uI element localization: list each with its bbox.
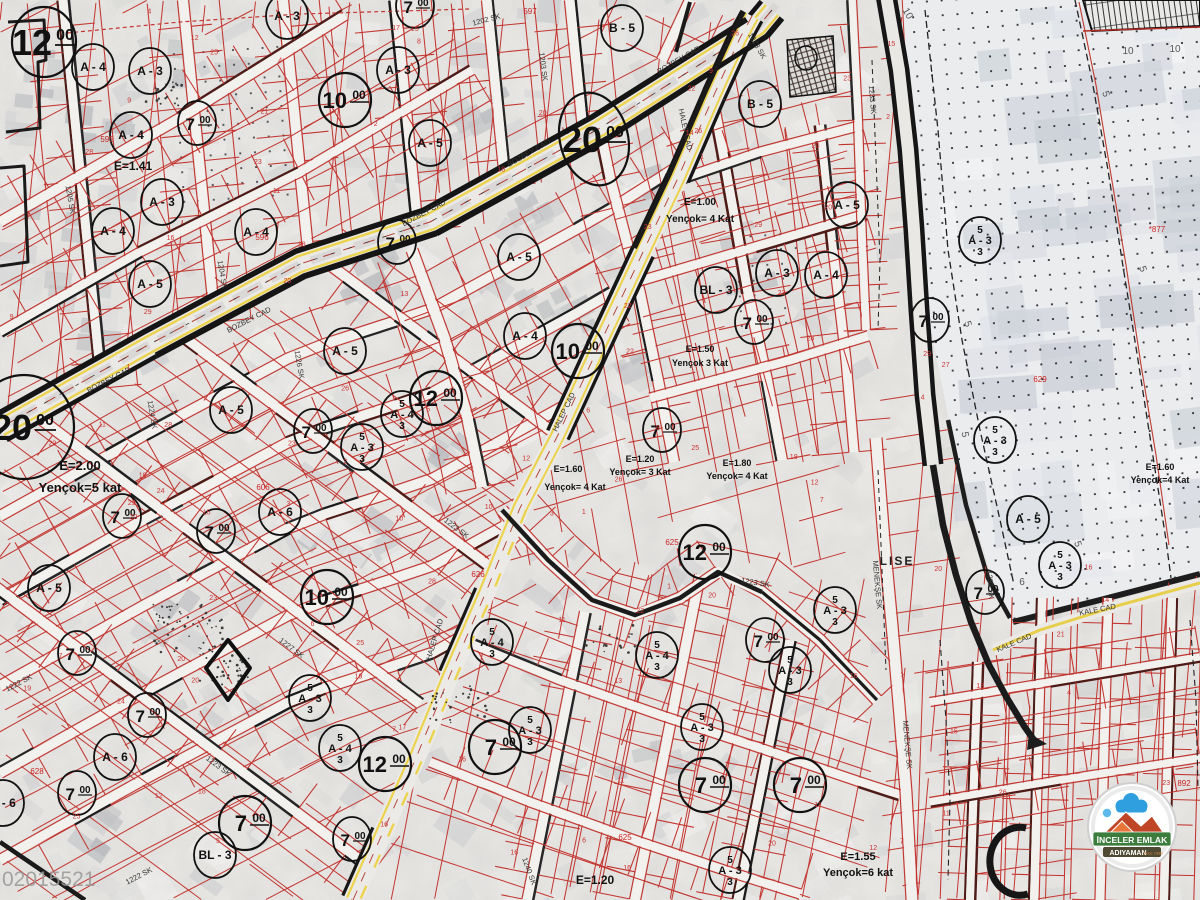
svg-text:Yençok= 4 Kat: Yençok= 4 Kat xyxy=(706,471,767,481)
svg-text:7: 7 xyxy=(754,632,763,651)
svg-text:7: 7 xyxy=(743,314,752,333)
svg-text:A - 3: A - 3 xyxy=(274,9,300,23)
svg-text:8: 8 xyxy=(656,425,660,432)
svg-text:6: 6 xyxy=(310,621,314,628)
svg-text:A - 4: A - 4 xyxy=(390,409,414,421)
svg-text:1: 1 xyxy=(582,509,586,516)
svg-text:00: 00 xyxy=(352,88,366,102)
svg-text:628: 628 xyxy=(30,767,44,776)
svg-text:29: 29 xyxy=(144,309,152,316)
svg-text:7: 7 xyxy=(66,785,75,804)
svg-text:E=1.20: E=1.20 xyxy=(576,873,615,887)
svg-text:28: 28 xyxy=(807,336,815,343)
svg-text:14: 14 xyxy=(1101,597,1109,604)
svg-text:3: 3 xyxy=(489,649,495,660)
svg-text:3: 3 xyxy=(307,705,313,716)
svg-text:25: 25 xyxy=(691,445,699,452)
svg-text:7: 7 xyxy=(485,735,497,760)
svg-text:15: 15 xyxy=(888,41,896,48)
svg-text:20: 20 xyxy=(708,593,716,600)
svg-text:00: 00 xyxy=(252,811,266,825)
svg-text:8: 8 xyxy=(417,39,421,46)
svg-text:23: 23 xyxy=(1162,780,1170,787)
svg-text:00: 00 xyxy=(79,785,91,796)
svg-text:BL - 3: BL - 3 xyxy=(198,848,231,862)
svg-text:E=1.20: E=1.20 xyxy=(626,454,655,464)
svg-text:14: 14 xyxy=(686,130,694,137)
svg-text:A - 6: A - 6 xyxy=(0,796,16,810)
svg-text:13: 13 xyxy=(401,291,409,298)
svg-text:00: 00 xyxy=(606,124,624,141)
svg-text:00: 00 xyxy=(502,735,516,749)
svg-text:606: 606 xyxy=(256,483,270,492)
svg-text:7: 7 xyxy=(386,234,395,253)
svg-text:A - 6: A - 6 xyxy=(102,750,128,764)
svg-text:00: 00 xyxy=(199,115,211,126)
svg-text:7: 7 xyxy=(186,115,195,134)
svg-text:595: 595 xyxy=(100,135,114,144)
svg-text:29: 29 xyxy=(923,351,931,358)
svg-text:A - 5: A - 5 xyxy=(1015,512,1041,526)
svg-text:21: 21 xyxy=(261,109,269,116)
svg-text:E=1.80: E=1.80 xyxy=(723,458,752,468)
svg-text:A - 4: A - 4 xyxy=(512,329,538,343)
svg-text:7: 7 xyxy=(790,773,802,798)
svg-text:Yençok=5 kat: Yençok=5 kat xyxy=(39,480,122,495)
svg-text:16: 16 xyxy=(623,865,631,872)
svg-text:00: 00 xyxy=(399,234,411,245)
svg-text:Yençok=4 Kat: Yençok=4 Kat xyxy=(1131,475,1190,485)
svg-text:19: 19 xyxy=(23,686,31,693)
svg-text:00: 00 xyxy=(443,386,457,400)
svg-text:A - 4: A - 4 xyxy=(480,637,504,649)
svg-text:E=1.50: E=1.50 xyxy=(686,344,715,354)
svg-text:23: 23 xyxy=(209,595,217,602)
svg-text:26: 26 xyxy=(615,477,623,484)
svg-text:596: 596 xyxy=(255,233,269,242)
svg-text:12: 12 xyxy=(811,479,819,486)
svg-text:A - 4: A - 4 xyxy=(645,650,669,662)
svg-text:00: 00 xyxy=(392,752,406,766)
svg-text:A - 5: A - 5 xyxy=(218,403,244,417)
svg-text:16: 16 xyxy=(458,756,466,763)
svg-text:E=1.00: E=1.00 xyxy=(684,197,716,208)
svg-text:20: 20 xyxy=(562,119,602,160)
svg-text:26: 26 xyxy=(694,128,702,135)
svg-text:10: 10 xyxy=(395,515,403,522)
svg-text:00: 00 xyxy=(334,585,348,599)
svg-text:E=1.60: E=1.60 xyxy=(1146,462,1175,472)
svg-text:9: 9 xyxy=(709,68,713,75)
svg-text:3: 3 xyxy=(787,677,793,688)
svg-text:3: 3 xyxy=(699,734,705,745)
svg-text:A - 3: A - 3 xyxy=(778,665,801,677)
svg-text:3: 3 xyxy=(1057,572,1063,583)
svg-text:00: 00 xyxy=(712,540,726,554)
svg-text:10: 10 xyxy=(323,88,347,113)
svg-text:00: 00 xyxy=(354,831,366,842)
svg-text:1: 1 xyxy=(700,153,704,160)
svg-text:625: 625 xyxy=(618,833,632,842)
svg-text:626: 626 xyxy=(471,570,485,579)
svg-text:12: 12 xyxy=(191,35,199,42)
svg-text:7: 7 xyxy=(302,423,311,442)
svg-text:00: 00 xyxy=(79,645,91,656)
svg-text:12: 12 xyxy=(12,22,52,63)
svg-text:20: 20 xyxy=(284,278,292,285)
svg-text:11: 11 xyxy=(273,188,280,195)
svg-text:A - 5: A - 5 xyxy=(417,136,443,150)
svg-text:6: 6 xyxy=(582,838,586,845)
svg-text:A - 3: A - 3 xyxy=(298,693,321,705)
svg-text:4: 4 xyxy=(921,395,925,402)
svg-text:A - 3: A - 3 xyxy=(718,865,741,877)
svg-text:A - 5: A - 5 xyxy=(506,250,532,264)
svg-text:12: 12 xyxy=(363,752,387,777)
svg-text:00: 00 xyxy=(315,423,327,434)
svg-text:A - 3: A - 3 xyxy=(764,266,790,280)
svg-text:6: 6 xyxy=(586,408,590,415)
svg-text:A - 3: A - 3 xyxy=(690,722,713,734)
svg-text:16: 16 xyxy=(380,822,388,829)
svg-text:2: 2 xyxy=(374,121,378,128)
svg-text:23: 23 xyxy=(288,441,296,448)
svg-text:7: 7 xyxy=(900,839,904,846)
svg-text:13: 13 xyxy=(614,678,622,685)
svg-text:7: 7 xyxy=(341,831,350,850)
svg-text:20: 20 xyxy=(177,656,185,663)
svg-text:21: 21 xyxy=(1057,632,1065,639)
svg-text:A - 4: A - 4 xyxy=(813,268,839,282)
svg-text:23: 23 xyxy=(843,76,851,83)
svg-text:Yençok=6 kat: Yençok=6 kat xyxy=(823,867,893,879)
svg-text:A - 4: A - 4 xyxy=(118,128,144,142)
svg-text:4: 4 xyxy=(278,58,282,65)
svg-text:BL - 3: BL - 3 xyxy=(699,283,732,297)
svg-text:28: 28 xyxy=(428,579,436,586)
svg-text:A - 5: A - 5 xyxy=(332,344,358,358)
svg-text:13: 13 xyxy=(976,683,984,690)
svg-text:00: 00 xyxy=(36,412,54,429)
svg-text:A - 3: A - 3 xyxy=(149,195,175,209)
svg-text:23: 23 xyxy=(644,224,652,231)
svg-text:22: 22 xyxy=(688,85,696,92)
svg-text:00: 00 xyxy=(149,707,161,718)
svg-text:16: 16 xyxy=(850,673,858,680)
svg-text:28: 28 xyxy=(164,422,172,429)
svg-text:10: 10 xyxy=(1122,46,1134,57)
svg-text:2: 2 xyxy=(343,459,347,466)
svg-text:11: 11 xyxy=(814,802,821,809)
svg-text:7: 7 xyxy=(66,645,75,664)
svg-text:A - 5: A - 5 xyxy=(36,581,62,595)
svg-text:20: 20 xyxy=(768,840,776,847)
svg-text:12: 12 xyxy=(155,793,163,800)
svg-text:E=2.00: E=2.00 xyxy=(59,458,101,473)
svg-text:9: 9 xyxy=(127,98,131,105)
svg-text:19: 19 xyxy=(790,454,798,461)
svg-text:11: 11 xyxy=(99,422,106,429)
svg-text:5: 5 xyxy=(426,407,430,414)
svg-text:25: 25 xyxy=(356,640,364,647)
svg-text:26: 26 xyxy=(731,31,739,38)
svg-text:7: 7 xyxy=(392,727,396,734)
svg-text:3: 3 xyxy=(992,447,998,458)
svg-text:7: 7 xyxy=(404,0,413,17)
svg-text:25: 25 xyxy=(73,813,81,820)
svg-text:00: 00 xyxy=(807,773,821,787)
svg-text:A - 3: A - 3 xyxy=(350,442,373,454)
svg-text:3: 3 xyxy=(977,247,983,258)
svg-text:20: 20 xyxy=(0,407,32,448)
svg-text:20: 20 xyxy=(191,678,199,685)
svg-text:A - 3: A - 3 xyxy=(983,435,1006,447)
svg-text:1: 1 xyxy=(126,364,130,371)
svg-text:5: 5 xyxy=(216,838,220,845)
svg-text:E=1.41: E=1.41 xyxy=(114,159,153,173)
svg-text:LISE: LISE xyxy=(880,554,915,568)
svg-text:16: 16 xyxy=(1085,565,1093,572)
svg-text:25: 25 xyxy=(210,50,218,57)
svg-text:29: 29 xyxy=(49,441,57,448)
svg-text:00: 00 xyxy=(585,339,599,353)
svg-text:26: 26 xyxy=(999,789,1007,796)
svg-text:22: 22 xyxy=(624,303,632,310)
svg-text:00: 00 xyxy=(756,314,768,325)
svg-text:20: 20 xyxy=(539,110,547,117)
svg-text:7: 7 xyxy=(111,508,120,527)
svg-text:A - 3: A - 3 xyxy=(385,63,411,77)
svg-text:16: 16 xyxy=(167,235,175,242)
svg-text:29: 29 xyxy=(128,500,136,507)
svg-text:A - 4: A - 4 xyxy=(328,743,352,755)
svg-text:9: 9 xyxy=(10,314,14,321)
svg-text:16: 16 xyxy=(510,850,518,857)
svg-text:3: 3 xyxy=(286,501,290,508)
svg-text:15: 15 xyxy=(203,510,211,517)
svg-text:625: 625 xyxy=(665,538,679,547)
svg-text:12: 12 xyxy=(522,455,530,462)
svg-text:20: 20 xyxy=(934,566,942,573)
svg-text:2: 2 xyxy=(886,114,890,121)
svg-text:7: 7 xyxy=(695,773,707,798)
svg-text:7: 7 xyxy=(205,523,214,542)
svg-text:7: 7 xyxy=(235,811,247,836)
svg-text:02015521: 02015521 xyxy=(2,868,95,891)
svg-text:3: 3 xyxy=(654,662,660,673)
svg-text:892: 892 xyxy=(1177,779,1191,788)
svg-text:26: 26 xyxy=(341,386,349,393)
svg-text:18: 18 xyxy=(497,166,505,173)
svg-text:A - 5: A - 5 xyxy=(834,198,860,212)
svg-text:18: 18 xyxy=(198,788,206,795)
svg-text:12: 12 xyxy=(869,845,877,852)
svg-text:22: 22 xyxy=(626,348,634,355)
svg-text:10: 10 xyxy=(305,585,329,610)
svg-text:10: 10 xyxy=(556,339,580,364)
svg-text:15: 15 xyxy=(411,26,419,33)
svg-text:18: 18 xyxy=(298,241,306,248)
svg-text:A - 3: A - 3 xyxy=(968,235,991,247)
svg-text:12: 12 xyxy=(683,540,707,565)
svg-text:23: 23 xyxy=(254,159,262,166)
svg-text:since 1988: since 1988 xyxy=(1143,851,1163,856)
svg-text:ADIYAMAN: ADIYAMAN xyxy=(1109,850,1146,857)
svg-text:A - 3: A - 3 xyxy=(518,725,541,737)
svg-text:00: 00 xyxy=(712,773,726,787)
svg-text:24: 24 xyxy=(117,699,125,706)
svg-text:22: 22 xyxy=(636,608,644,615)
svg-text:00: 00 xyxy=(932,312,944,323)
svg-text:23: 23 xyxy=(778,290,786,297)
svg-text:20: 20 xyxy=(824,204,832,211)
svg-text:7: 7 xyxy=(136,707,145,726)
svg-text:6: 6 xyxy=(1019,577,1025,588)
svg-text:A - 3: A - 3 xyxy=(137,64,163,78)
svg-text:597: 597 xyxy=(523,7,537,16)
svg-text:28: 28 xyxy=(85,149,93,156)
svg-text:11: 11 xyxy=(559,617,566,624)
svg-text:15: 15 xyxy=(950,728,958,735)
svg-text:24: 24 xyxy=(157,488,165,495)
svg-text:3: 3 xyxy=(359,454,365,465)
svg-text:A - 3: A - 3 xyxy=(1048,560,1071,572)
svg-text:10: 10 xyxy=(139,472,147,479)
svg-text:B - 5: B - 5 xyxy=(747,97,773,111)
svg-text:19: 19 xyxy=(355,674,363,681)
svg-text:Yençok= 4 Kat: Yençok= 4 Kat xyxy=(544,482,605,492)
svg-text:7: 7 xyxy=(919,312,928,331)
svg-text:00: 00 xyxy=(218,523,230,534)
svg-text:29: 29 xyxy=(754,222,762,229)
svg-text:3: 3 xyxy=(399,421,405,432)
svg-text:B - 5: B - 5 xyxy=(609,21,635,35)
svg-text:4: 4 xyxy=(1067,690,1071,697)
svg-text:3: 3 xyxy=(337,755,343,766)
svg-text:A - 5: A - 5 xyxy=(137,277,163,291)
svg-text:E=1.60: E=1.60 xyxy=(554,464,583,474)
svg-text:20: 20 xyxy=(812,143,820,150)
svg-text:Yençok 3 Kat: Yençok 3 Kat xyxy=(672,358,728,368)
svg-text:A - 3: A - 3 xyxy=(823,605,846,617)
svg-text:3: 3 xyxy=(550,511,554,518)
svg-text:7: 7 xyxy=(974,584,983,603)
svg-text:Yençok= 3 Kat: Yençok= 3 Kat xyxy=(609,467,670,477)
svg-text:A - 4: A - 4 xyxy=(100,224,126,238)
svg-text:3: 3 xyxy=(832,617,838,628)
svg-text:629: 629 xyxy=(1033,375,1047,384)
svg-text:1: 1 xyxy=(667,583,671,590)
svg-text:10: 10 xyxy=(1169,44,1181,55)
svg-text:İNCELER EMLAK: İNCELER EMLAK xyxy=(1097,835,1168,845)
svg-text:17: 17 xyxy=(392,25,400,32)
svg-text:11: 11 xyxy=(942,811,949,818)
svg-text:E=1.55: E=1.55 xyxy=(840,851,875,863)
svg-text:*877: *877 xyxy=(1149,225,1166,234)
svg-text:17: 17 xyxy=(399,725,407,732)
svg-text:Yençok= 4 Kat: Yençok= 4 Kat xyxy=(666,214,735,225)
svg-text:3: 3 xyxy=(727,877,733,888)
svg-text:20: 20 xyxy=(130,514,138,521)
svg-text:7: 7 xyxy=(59,653,63,660)
svg-text:11: 11 xyxy=(617,778,624,785)
svg-text:A - 4: A - 4 xyxy=(80,60,106,74)
svg-text:00: 00 xyxy=(664,422,676,433)
svg-text:00: 00 xyxy=(56,27,74,44)
svg-text:7: 7 xyxy=(820,497,824,504)
svg-text:00: 00 xyxy=(767,632,779,643)
svg-text:3: 3 xyxy=(527,737,533,748)
svg-text:10: 10 xyxy=(485,504,493,511)
svg-text:4: 4 xyxy=(147,8,151,15)
svg-text:27: 27 xyxy=(942,362,950,369)
